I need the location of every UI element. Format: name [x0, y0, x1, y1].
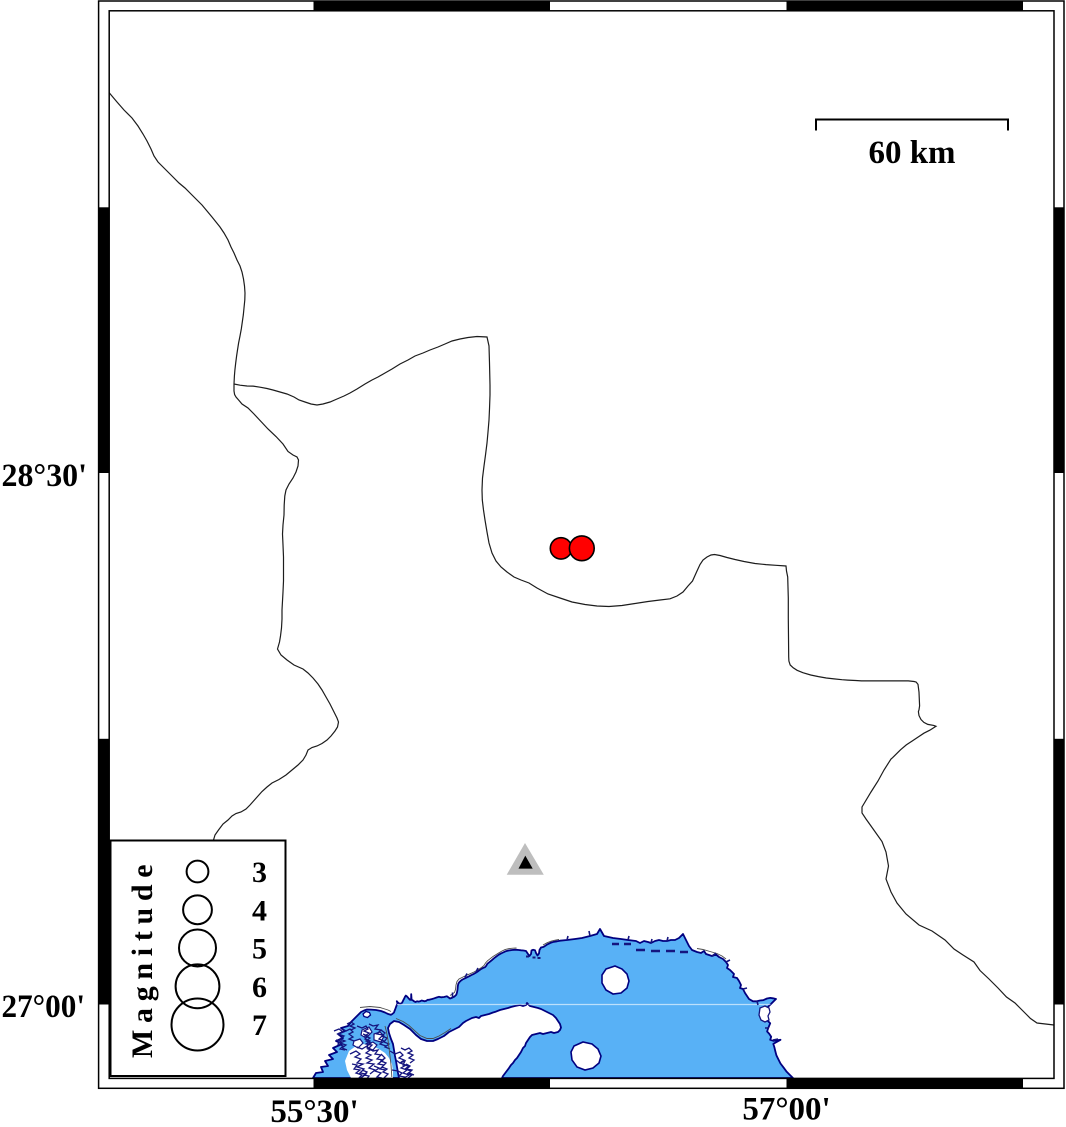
svg-text:3: 3: [252, 856, 267, 889]
svg-text:27°00': 27°00': [2, 989, 86, 1025]
svg-text:6: 6: [252, 971, 267, 1004]
svg-text:28°30': 28°30': [2, 458, 88, 494]
svg-text:7: 7: [252, 1009, 267, 1042]
svg-text:Magnitude: Magnitude: [126, 858, 159, 1058]
svg-text:55°30': 55°30': [270, 1094, 358, 1127]
svg-text:4: 4: [252, 894, 267, 927]
svg-text:5: 5: [252, 933, 267, 966]
svg-text:60 km: 60 km: [868, 135, 955, 171]
svg-text:57°00': 57°00': [742, 1092, 830, 1127]
